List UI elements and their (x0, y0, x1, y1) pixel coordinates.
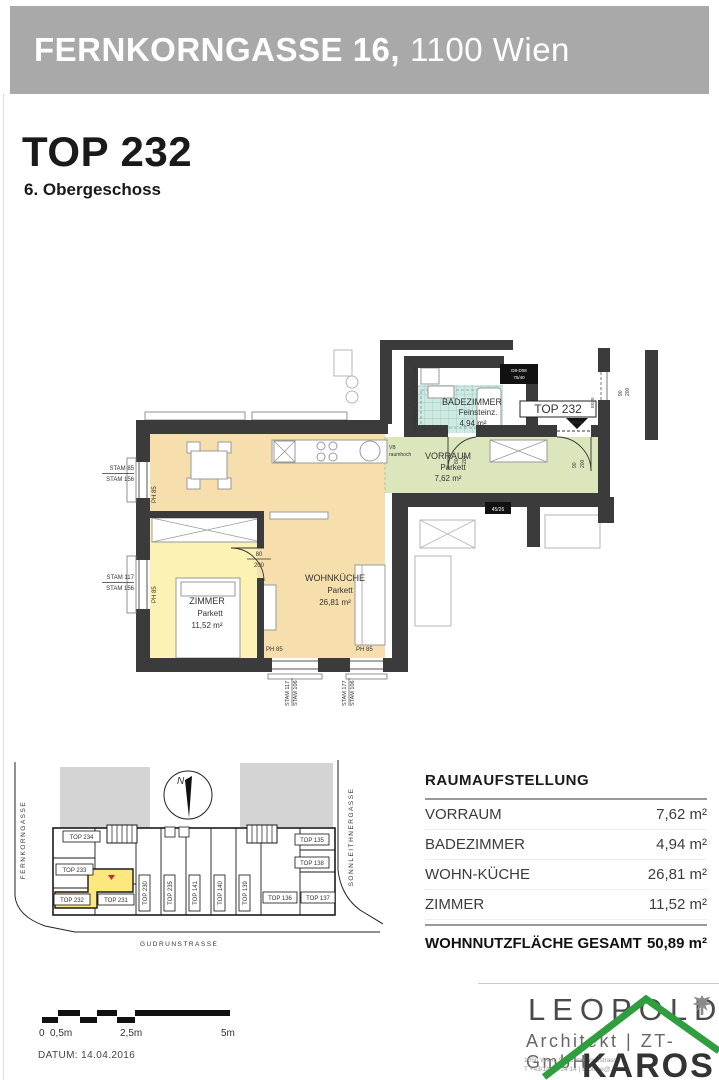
unit-label: TOP 136 (268, 896, 292, 902)
table-row: VORRAUM 7,62 m² (425, 800, 707, 830)
shaft-label: 45/26 (492, 507, 505, 513)
address-header-bar: FERNKORNGASSE 16, 1100 Wien (10, 6, 709, 94)
svg-text:PH 85: PH 85 (152, 486, 158, 503)
svg-text:7,62 m²: 7,62 m² (434, 474, 461, 483)
svg-text:11,52 m²: 11,52 m² (192, 621, 223, 630)
svg-text:200: 200 (580, 459, 586, 468)
unit-label: TOP 230 (143, 880, 149, 904)
row-label: BADEZIMMER (425, 836, 525, 853)
badezimmer-name: BADEZIMMER (442, 397, 503, 407)
north-compass: N (164, 771, 212, 819)
room-table: RAUMAUFSTELLUNG VORRAUM 7,62 m² BADEZIMM… (425, 772, 707, 952)
unit-label: TOP 137 (306, 896, 330, 902)
svg-text:Feinsteinz.: Feinsteinz. (459, 408, 498, 417)
svg-text:E030: E030 (590, 397, 595, 408)
svg-text:STAM 117: STAM 117 (107, 575, 135, 581)
unit-label: TOP 231 (104, 898, 128, 904)
svg-text:Verkleidung b=25 cm, UK +19,86: Verkleidung b=25 cm, UK +19,86 (412, 366, 417, 433)
street-gudrunstrasse: GUDRUNSTRASSE (140, 941, 218, 948)
shelf (270, 512, 328, 519)
entrance-unit-label: TOP 232 (534, 402, 582, 416)
row-label: ZIMMER (425, 896, 484, 913)
total-area: 50,89 m² (647, 935, 707, 952)
svg-text:Parkett: Parkett (197, 609, 223, 618)
pillow (181, 582, 235, 596)
siteplan-drawing: N (5, 758, 417, 963)
table-row: ZIMMER 11,52 m² (425, 890, 707, 920)
svg-text:Parkett: Parkett (327, 586, 353, 595)
unit-label: TOP 139 (243, 880, 249, 904)
row-area: 4,94 m² (656, 836, 707, 853)
unit-label: TOP 135 (300, 838, 324, 844)
scale-bar: 0 0,5m 2,5m 5m (35, 1000, 245, 1045)
hob-burner (317, 442, 325, 450)
unit-label: TOP 235 (168, 880, 174, 904)
table-row: BADEZIMMER 4,94 m² (425, 830, 707, 860)
svg-text:PH 85: PH 85 (152, 586, 158, 603)
svg-text:VB: VB (389, 445, 396, 451)
unit-label: TOP 138 (300, 861, 324, 867)
street-fernkorngasse: FERNKORNGASSE (20, 801, 27, 879)
svg-text:STAM 85: STAM 85 (109, 466, 134, 472)
unit-label: TOP 234 (70, 835, 94, 841)
neighbor-sink (346, 376, 358, 388)
neighbor-wc (346, 391, 358, 403)
floor-subtitle: 6. Obergeschoss (24, 180, 161, 200)
wohnkueche-name: WOHNKÜCHE (305, 573, 365, 583)
row-area: 26,81 m² (648, 866, 707, 883)
svg-text:STAM 106: STAM 106 (350, 680, 356, 706)
street-sonnleithnergasse: SONNLEITHNERGASSE (348, 788, 355, 887)
svg-text:STAM 106: STAM 106 (293, 680, 299, 706)
svg-text:STAM 177: STAM 177 (342, 680, 348, 706)
svg-text:STAM 117: STAM 117 (285, 681, 291, 706)
svg-text:80: 80 (256, 552, 263, 558)
scale-5m: 5m (221, 1028, 235, 1039)
row-area: 11,52 m² (649, 896, 707, 913)
svg-text:PH 85: PH 85 (266, 647, 283, 653)
date-label: DATUM: 14.04.2016 (38, 1050, 135, 1061)
svg-text:200: 200 (625, 387, 631, 396)
bath-shaft (421, 368, 439, 384)
zimmer-name: ZIMMER (189, 596, 225, 606)
unit-label-highlighted: TOP 232 (60, 898, 84, 904)
row-label: VORRAUM (425, 806, 502, 823)
svg-text:Parkett: Parkett (440, 463, 466, 472)
duct-label-2: 75/40 (513, 375, 525, 380)
entrance-door-code: E030 (572, 420, 583, 425)
svg-text:PH 85: PH 85 (356, 647, 373, 653)
karos-text: KAROS (582, 1047, 715, 1080)
north-label: N (177, 776, 185, 787)
table-row: WOHN-KÜCHE 26,81 m² (425, 860, 707, 890)
header-street: FERNKORNGASSE 16, (34, 31, 400, 69)
svg-text:90: 90 (618, 390, 624, 396)
header-city: 1100 Wien (410, 31, 570, 69)
svg-text:raumhoch: raumhoch (389, 452, 411, 458)
floorplan-drawing: D8-D08 75/40 45/26 (0, 330, 719, 762)
row-label: WOHN-KÜCHE (425, 866, 530, 883)
svg-text:90: 90 (572, 462, 578, 468)
scale-0: 0 (39, 1028, 45, 1039)
scale-05m: 0,5m (50, 1028, 72, 1039)
chair (187, 478, 200, 489)
karos-watermark: KAROS (538, 993, 719, 1080)
page-title: TOP 232 (22, 128, 192, 176)
duct-label-1: D8-D08 (511, 368, 527, 373)
vorraum-name: VORRAUM (425, 451, 471, 461)
svg-text:4,94 m²: 4,94 m² (459, 419, 486, 428)
unit-label: TOP 233 (63, 868, 87, 874)
floorplan-document-page: FERNKORNGASSE 16, 1100 Wien TOP 232 6. O… (0, 0, 719, 1080)
table-total-row: WOHNNUTZFLÄCHE GESAMT 50,89 m² (425, 924, 707, 952)
svg-text:200: 200 (254, 563, 265, 569)
svg-text:STAM 156: STAM 156 (106, 586, 135, 592)
row-area: 7,62 m² (656, 806, 707, 823)
neighbor-building (240, 763, 333, 827)
scale-25m: 2,5m (120, 1028, 142, 1039)
chair (218, 478, 231, 489)
kitchen-basin (360, 441, 380, 461)
neighbor-building (60, 767, 150, 828)
unit-label: TOP 141 (193, 880, 199, 904)
neighbor-fixture (334, 350, 352, 376)
dining-table (191, 451, 227, 479)
unit-label: TOP 140 (218, 880, 224, 904)
svg-text:26,81 m²: 26,81 m² (319, 598, 351, 607)
room-table-title: RAUMAUFSTELLUNG (425, 772, 707, 800)
svg-text:STAM 156: STAM 156 (106, 477, 135, 483)
total-label: WOHNNUTZFLÄCHE GESAMT (425, 935, 642, 952)
